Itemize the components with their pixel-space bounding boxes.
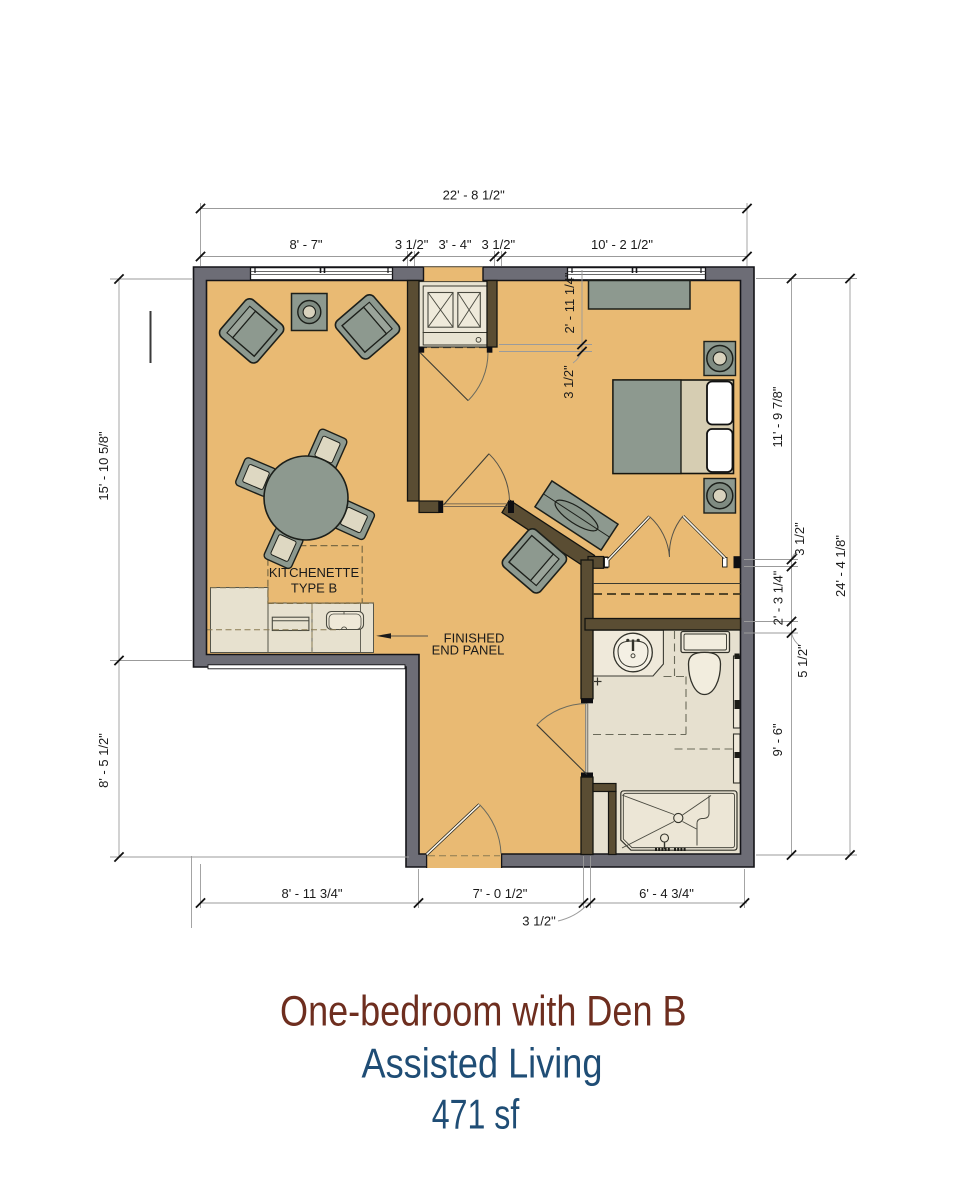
svg-text:471 sf: 471 sf xyxy=(432,1090,520,1137)
svg-text:Assisted Living: Assisted Living xyxy=(362,1040,603,1087)
svg-text:15' - 10 5/8": 15' - 10 5/8" xyxy=(96,431,111,501)
svg-text:24' - 4 1/8": 24' - 4 1/8" xyxy=(833,535,848,597)
svg-text:5 1/2": 5 1/2" xyxy=(795,644,810,678)
svg-text:One-bedroom with Den B: One-bedroom with Den B xyxy=(280,987,687,1035)
svg-text:6' - 4 3/4": 6' - 4 3/4" xyxy=(639,886,694,901)
svg-text:9' - 6": 9' - 6" xyxy=(770,723,785,756)
svg-text:8' - 5 1/2": 8' - 5 1/2" xyxy=(96,733,111,788)
svg-text:10' - 2 1/2": 10' - 2 1/2" xyxy=(591,237,653,252)
svg-text:3' - 4": 3' - 4" xyxy=(438,237,471,252)
svg-text:3 1/2": 3 1/2" xyxy=(395,237,429,252)
svg-text:2' - 3 1/4": 2' - 3 1/4" xyxy=(771,570,786,625)
svg-text:TYPE B: TYPE B xyxy=(291,581,337,596)
svg-text:11' - 9 7/8": 11' - 9 7/8" xyxy=(770,386,785,447)
svg-text:3 1/2": 3 1/2" xyxy=(482,237,516,252)
svg-text:3 1/2": 3 1/2" xyxy=(792,522,807,556)
svg-text:KITCHENETTE: KITCHENETTE xyxy=(269,565,360,580)
svg-text:2' - 11 1/4": 2' - 11 1/4" xyxy=(562,272,577,333)
svg-text:END PANEL: END PANEL xyxy=(432,643,505,658)
svg-text:8' - 7": 8' - 7" xyxy=(289,237,322,252)
svg-text:3 1/2": 3 1/2" xyxy=(522,914,556,929)
svg-text:22' - 8 1/2": 22' - 8 1/2" xyxy=(443,188,505,203)
svg-text:3 1/2": 3 1/2" xyxy=(561,365,576,399)
svg-text:7' - 0 1/2": 7' - 0 1/2" xyxy=(473,886,528,901)
svg-text:8' - 11 3/4": 8' - 11 3/4" xyxy=(281,886,342,901)
